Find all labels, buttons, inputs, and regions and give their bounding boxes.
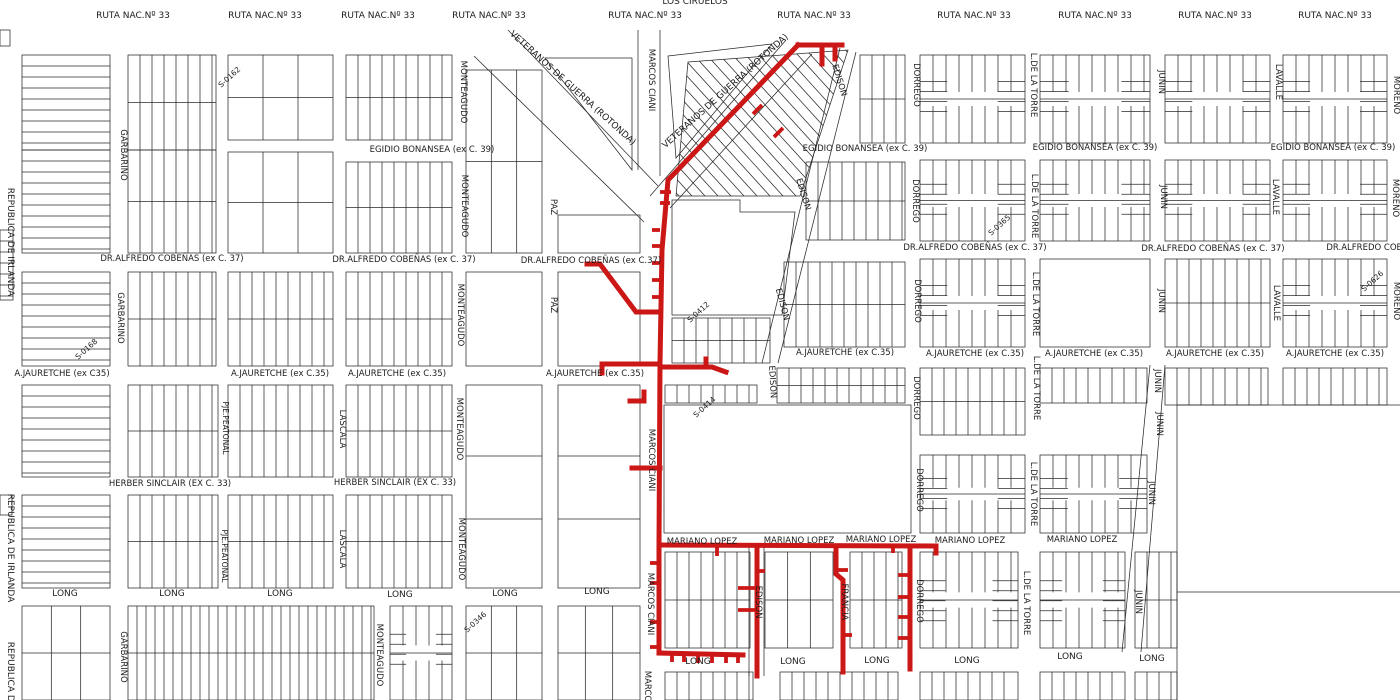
street-label: REPUBLICA DE IRLANDA	[5, 494, 15, 603]
street-label: LONG	[267, 589, 293, 599]
route-service-tick	[774, 128, 783, 137]
street-label: A.JAURETCHE (ex C.35)	[796, 348, 894, 358]
street-label: GARBARINO	[118, 129, 128, 181]
city-block	[1040, 672, 1125, 700]
lot-code-label: S-0412	[685, 300, 711, 325]
city-block	[1040, 259, 1150, 347]
street-label: LONG	[1139, 654, 1165, 664]
street-label: GARBARINO	[115, 292, 125, 344]
city-block	[346, 385, 452, 477]
city-block	[765, 552, 833, 648]
city-block	[346, 162, 452, 253]
city-block	[784, 262, 905, 347]
street-label: PJE.PEATONAL	[221, 401, 230, 455]
city-block	[228, 385, 333, 477]
city-block	[558, 385, 640, 588]
street-label: DR.ALFREDO COBEÑAS (ex C. 37)	[1326, 242, 1400, 253]
city-block	[346, 55, 452, 140]
city-block	[1040, 55, 1150, 143]
street-label: LONG	[387, 590, 413, 600]
city-block	[1283, 259, 1387, 347]
street-label: RUTA NAC.Nº 33	[937, 11, 1011, 21]
city-block	[1283, 368, 1387, 405]
street-label: LONG	[685, 657, 711, 667]
street-label: MARIANO LOPEZ	[667, 537, 738, 547]
city-block	[22, 55, 110, 150]
city-block	[777, 368, 905, 403]
street-label: JUNIN	[1146, 480, 1156, 505]
route-segment	[587, 264, 660, 312]
street-label: EDISON	[753, 586, 763, 619]
city-block	[920, 368, 1025, 435]
street-label: JUNIN	[1156, 288, 1166, 313]
street-label: L.DE LA TORRE	[1030, 272, 1040, 337]
street-label: EGIDIO BONANSEA (ex C. 39)	[370, 145, 495, 155]
street-label: LONG	[159, 589, 185, 599]
street-label: JUNIN	[1156, 69, 1166, 94]
street-label: PAZ	[548, 199, 558, 215]
city-block	[850, 552, 902, 648]
street-label: RUTA NAC.Nº 33	[1058, 11, 1132, 21]
city-block	[228, 152, 333, 253]
street-label: MONTEAGUDO	[458, 61, 468, 124]
street-label: DR.ALFREDO COBEÑAS (ex C. 37)	[100, 253, 243, 264]
city-block	[920, 552, 1018, 648]
street-label: LAVALLE	[1270, 179, 1280, 215]
city-block	[665, 552, 750, 648]
street-label: LONG	[780, 657, 806, 667]
city-block	[920, 259, 1025, 347]
city-block	[676, 50, 848, 196]
street-label: LAVALLE	[1271, 285, 1281, 321]
city-map[interactable]: RUTA NAC.Nº 33RUTA NAC.Nº 33RUTA NAC.Nº …	[0, 0, 1400, 700]
street-label: MONTEAGUDO	[454, 398, 464, 461]
street-label: DR.ALFREDO COBEÑAS (ex C. 37)	[1141, 243, 1284, 254]
city-block	[665, 672, 753, 700]
route-segment	[660, 367, 726, 372]
city-block	[22, 495, 110, 588]
city-block	[1165, 368, 1268, 405]
street-label: LOS CIRUELOS	[662, 0, 728, 7]
street-label: A.JAURETCHE (ex C.35)	[1286, 349, 1384, 359]
street-label: EGIDIO BONANSEA (ex C. 39)	[803, 144, 928, 154]
street-label: LONG	[52, 589, 78, 599]
street-label: DR.ALFREDO COBEÑAS (ex C. 37)	[332, 254, 475, 265]
street-label: MARCOS CIANI	[646, 49, 656, 111]
street-label: MONTEAGUDO	[455, 284, 465, 347]
street-label: MARCOS CIANI	[642, 671, 652, 700]
city-block	[558, 215, 640, 253]
city-block	[920, 160, 1025, 241]
street-label: DORREGO	[911, 63, 921, 107]
street-label: RUTA NAC.Nº 33	[452, 11, 526, 21]
street-label: DORREGO	[912, 279, 922, 323]
street-label: L.DE LA TORRE	[1028, 53, 1038, 118]
street-label: LONG	[864, 656, 890, 666]
street-label: MORENO	[1391, 76, 1400, 115]
city-block	[1135, 672, 1177, 700]
street-label: L.DE LA TORRE	[1031, 356, 1041, 421]
street-label: PJE.PEATONAL	[220, 529, 229, 583]
street-label: DR.ALFREDO COBEÑAS (ex C. 37)	[903, 242, 1046, 253]
street-label: A.JAURETCHE (ex C.35)	[1045, 349, 1143, 359]
street-label: PAZ	[548, 297, 558, 313]
city-block	[1283, 160, 1387, 241]
city-block	[128, 495, 218, 588]
city-block	[920, 55, 1025, 143]
map-viewport[interactable]: RUTA NAC.Nº 33RUTA NAC.Nº 33RUTA NAC.Nº …	[0, 0, 1400, 700]
street-label: RUTA NAC.Nº 33	[228, 11, 302, 21]
city-block	[466, 385, 542, 588]
city-block	[228, 55, 333, 140]
city-block	[672, 318, 770, 363]
city-block	[22, 385, 110, 477]
city-block	[466, 70, 542, 253]
street-label: RUTA NAC.Nº 33	[341, 11, 415, 21]
street-label: MARIANO LOPEZ	[935, 536, 1006, 546]
city-block	[1040, 160, 1150, 241]
street-label: A.JAURETCHE (ex C.35)	[926, 349, 1024, 359]
street-label: LONG	[954, 656, 980, 666]
street-label: MORENO	[1391, 282, 1400, 321]
street-label: L.DE LA TORRE	[1021, 571, 1031, 636]
city-block	[1165, 160, 1270, 241]
street-label: JUNIN	[1154, 411, 1164, 436]
street-label: HERBER SINCLAIR (EX C. 33)	[109, 479, 231, 489]
street-label: MONTEAGUDO	[459, 175, 469, 238]
street-label: LAVALLE	[1273, 64, 1283, 100]
street-label: RUTA NAC.Nº 33	[1178, 11, 1252, 21]
city-block	[128, 606, 374, 700]
city-block	[128, 385, 218, 477]
city-block	[22, 272, 110, 366]
street-label: MONTEAGUDO	[456, 518, 466, 581]
city-block	[228, 272, 333, 366]
street-label: DORREGO	[914, 579, 924, 623]
street-label: LONG	[1057, 652, 1083, 662]
street-label: DORREGO	[910, 179, 920, 223]
city-block	[1165, 259, 1270, 347]
city-block	[1040, 368, 1147, 403]
street-label: JUNIN	[1152, 368, 1162, 393]
city-block	[128, 150, 216, 253]
street-label: HERBER SINCLAIR (EX C. 33)	[334, 478, 456, 488]
city-block	[780, 672, 898, 700]
lot-code-label: S-0365	[986, 213, 1012, 238]
street-label: DR.ALFREDO COBEÑAS (ex C.37)	[521, 255, 662, 266]
street-label: JUNIN	[1133, 589, 1143, 614]
street-label: RUTA NAC.Nº 33	[96, 11, 170, 21]
city-block	[466, 272, 542, 366]
street-label: REPUBLICA DE IRLANDA	[5, 642, 15, 700]
street-label: RUTA NAC.Nº 33	[777, 11, 851, 21]
street-label: REPUBLICA DE IRLANDA	[5, 188, 15, 297]
street-label: MARCOS CIANI	[645, 573, 655, 635]
lot-code-label: S-0162	[216, 65, 242, 90]
street-label: A.JAURETCHE (ex C.35)	[1166, 349, 1264, 359]
city-block	[860, 55, 905, 143]
city-block	[664, 405, 911, 533]
street-label: A.JAURETCHE (ex C.35)	[546, 369, 644, 379]
city-block	[1040, 455, 1147, 533]
street-label: DORREGO	[911, 376, 921, 420]
lot-code-label: S-0414	[691, 395, 717, 420]
city-block	[1040, 552, 1125, 648]
street-label: A.JAURETCHE (ex C.35)	[231, 369, 329, 379]
street-label: GARBARINO	[118, 631, 128, 683]
city-block	[920, 672, 1018, 700]
street-label: VETERANOS DE GUERRA (ROTONDA)	[507, 29, 637, 147]
city-block	[920, 455, 1025, 533]
city-block	[558, 272, 640, 366]
street-label: LONG	[584, 587, 610, 597]
street-label: EGIDIO BONANSEA (ex C. 39)	[1033, 143, 1158, 153]
lot-code-label: S-0626	[1359, 269, 1385, 294]
route-segment	[630, 392, 644, 401]
street-label: A.JAURETCHE (ex C.35)	[348, 369, 446, 379]
city-block	[558, 606, 640, 700]
street-label: EGIDIO BONANSEA (ex C. 39)	[1271, 143, 1396, 153]
street-label: MARIANO LOPEZ	[846, 535, 917, 545]
street-label: MARIANO LOPEZ	[764, 536, 835, 546]
city-block	[806, 162, 905, 240]
street-label: JUNIN	[1158, 184, 1168, 209]
diagonal-lots	[480, 20, 1226, 383]
street-label: L.DE LA TORRE	[1029, 174, 1039, 239]
city-block	[1165, 55, 1270, 143]
street-label: FRANCIA	[839, 584, 849, 621]
street-label: MONTEAGUDO	[374, 624, 384, 687]
street-label: RUTA NAC.Nº 33	[1298, 11, 1372, 21]
city-block	[128, 55, 216, 150]
street-label: LONG	[492, 589, 518, 599]
street-label: MARCOS CIANI	[646, 429, 656, 491]
street-labels-layer: RUTA NAC.Nº 33RUTA NAC.Nº 33RUTA NAC.Nº …	[5, 0, 1400, 700]
street-label: DORREGO	[914, 468, 924, 512]
city-block	[346, 272, 452, 366]
city-block	[228, 495, 333, 588]
street-label: A.JAURETCHE (ex C35)	[14, 369, 109, 379]
street-label: LASCALA	[337, 530, 347, 569]
city-block	[22, 150, 110, 253]
street-label: EDISON	[793, 177, 812, 211]
city-block	[22, 606, 110, 700]
city-block	[346, 495, 452, 588]
street-label: LASCALA	[337, 410, 347, 449]
city-block	[0, 30, 10, 46]
street-label: MARIANO LOPEZ	[1047, 535, 1118, 545]
city-block	[128, 272, 216, 366]
street-label: L.DE LA TORRE	[1028, 462, 1038, 527]
street-label: MORENO	[1390, 179, 1400, 218]
city-block	[390, 606, 452, 700]
street-label: RUTA NAC.Nº 33	[608, 11, 682, 21]
street-label: EDISON	[766, 365, 778, 398]
city-block	[1283, 55, 1387, 143]
